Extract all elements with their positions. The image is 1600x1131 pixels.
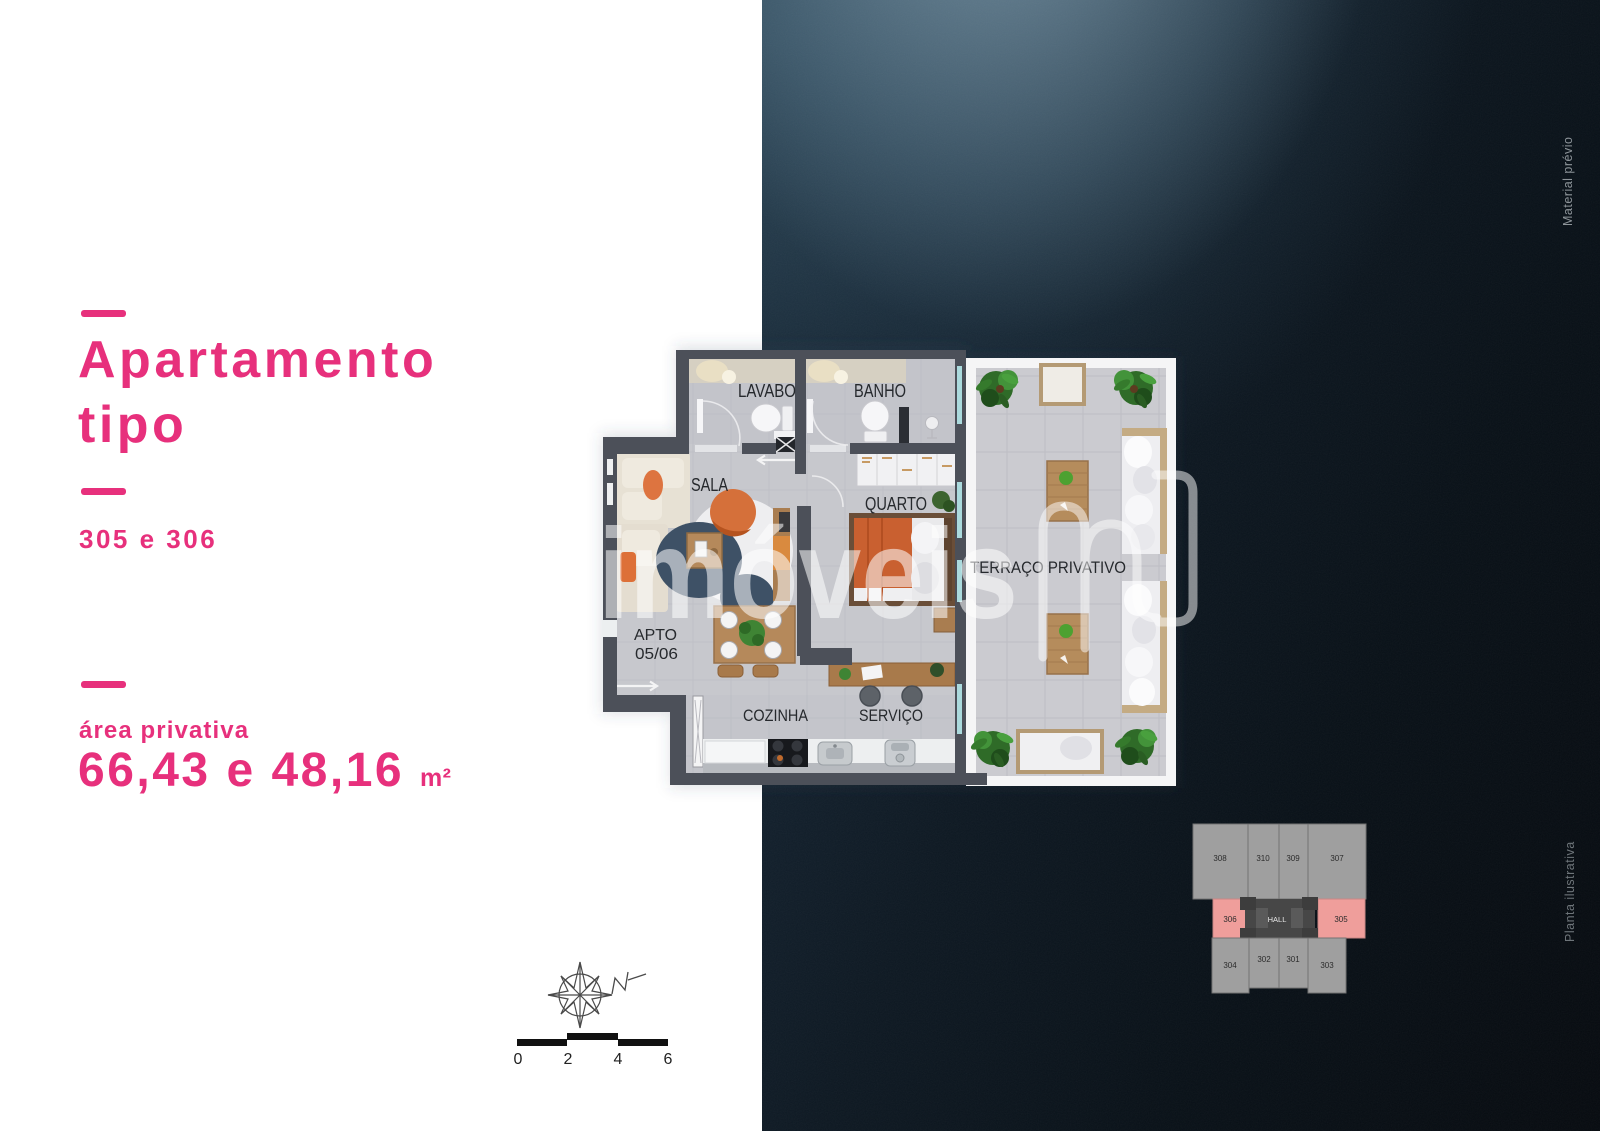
svg-text:304: 304	[1223, 961, 1237, 970]
svg-text:COZINHA: COZINHA	[743, 706, 809, 725]
svg-text:309: 309	[1286, 854, 1300, 863]
svg-text:306: 306	[1223, 915, 1237, 924]
svg-text:LAVABO: LAVABO	[738, 381, 796, 401]
svg-text:4: 4	[614, 1051, 623, 1068]
svg-text:Planta ilustrativa: Planta ilustrativa	[1563, 841, 1577, 942]
svg-text:HALL: HALL	[1268, 915, 1287, 924]
svg-text:BANHO: BANHO	[854, 381, 906, 401]
svg-text:05/06: 05/06	[635, 646, 678, 663]
svg-text:6: 6	[664, 1051, 673, 1068]
svg-text:0: 0	[514, 1051, 523, 1068]
svg-text:SALA: SALA	[691, 475, 728, 495]
svg-text:Material prévio: Material prévio	[1561, 137, 1575, 226]
svg-text:305: 305	[1334, 915, 1348, 924]
svg-text:SERVIÇO: SERVIÇO	[859, 706, 923, 725]
svg-text:308: 308	[1213, 854, 1227, 863]
svg-text:303: 303	[1320, 961, 1334, 970]
svg-text:310: 310	[1256, 854, 1270, 863]
svg-text:302: 302	[1257, 955, 1271, 964]
svg-text:2: 2	[564, 1051, 573, 1068]
svg-text:301: 301	[1286, 955, 1300, 964]
svg-text:imóveis: imóveis	[598, 503, 1018, 646]
svg-text:307: 307	[1330, 854, 1344, 863]
